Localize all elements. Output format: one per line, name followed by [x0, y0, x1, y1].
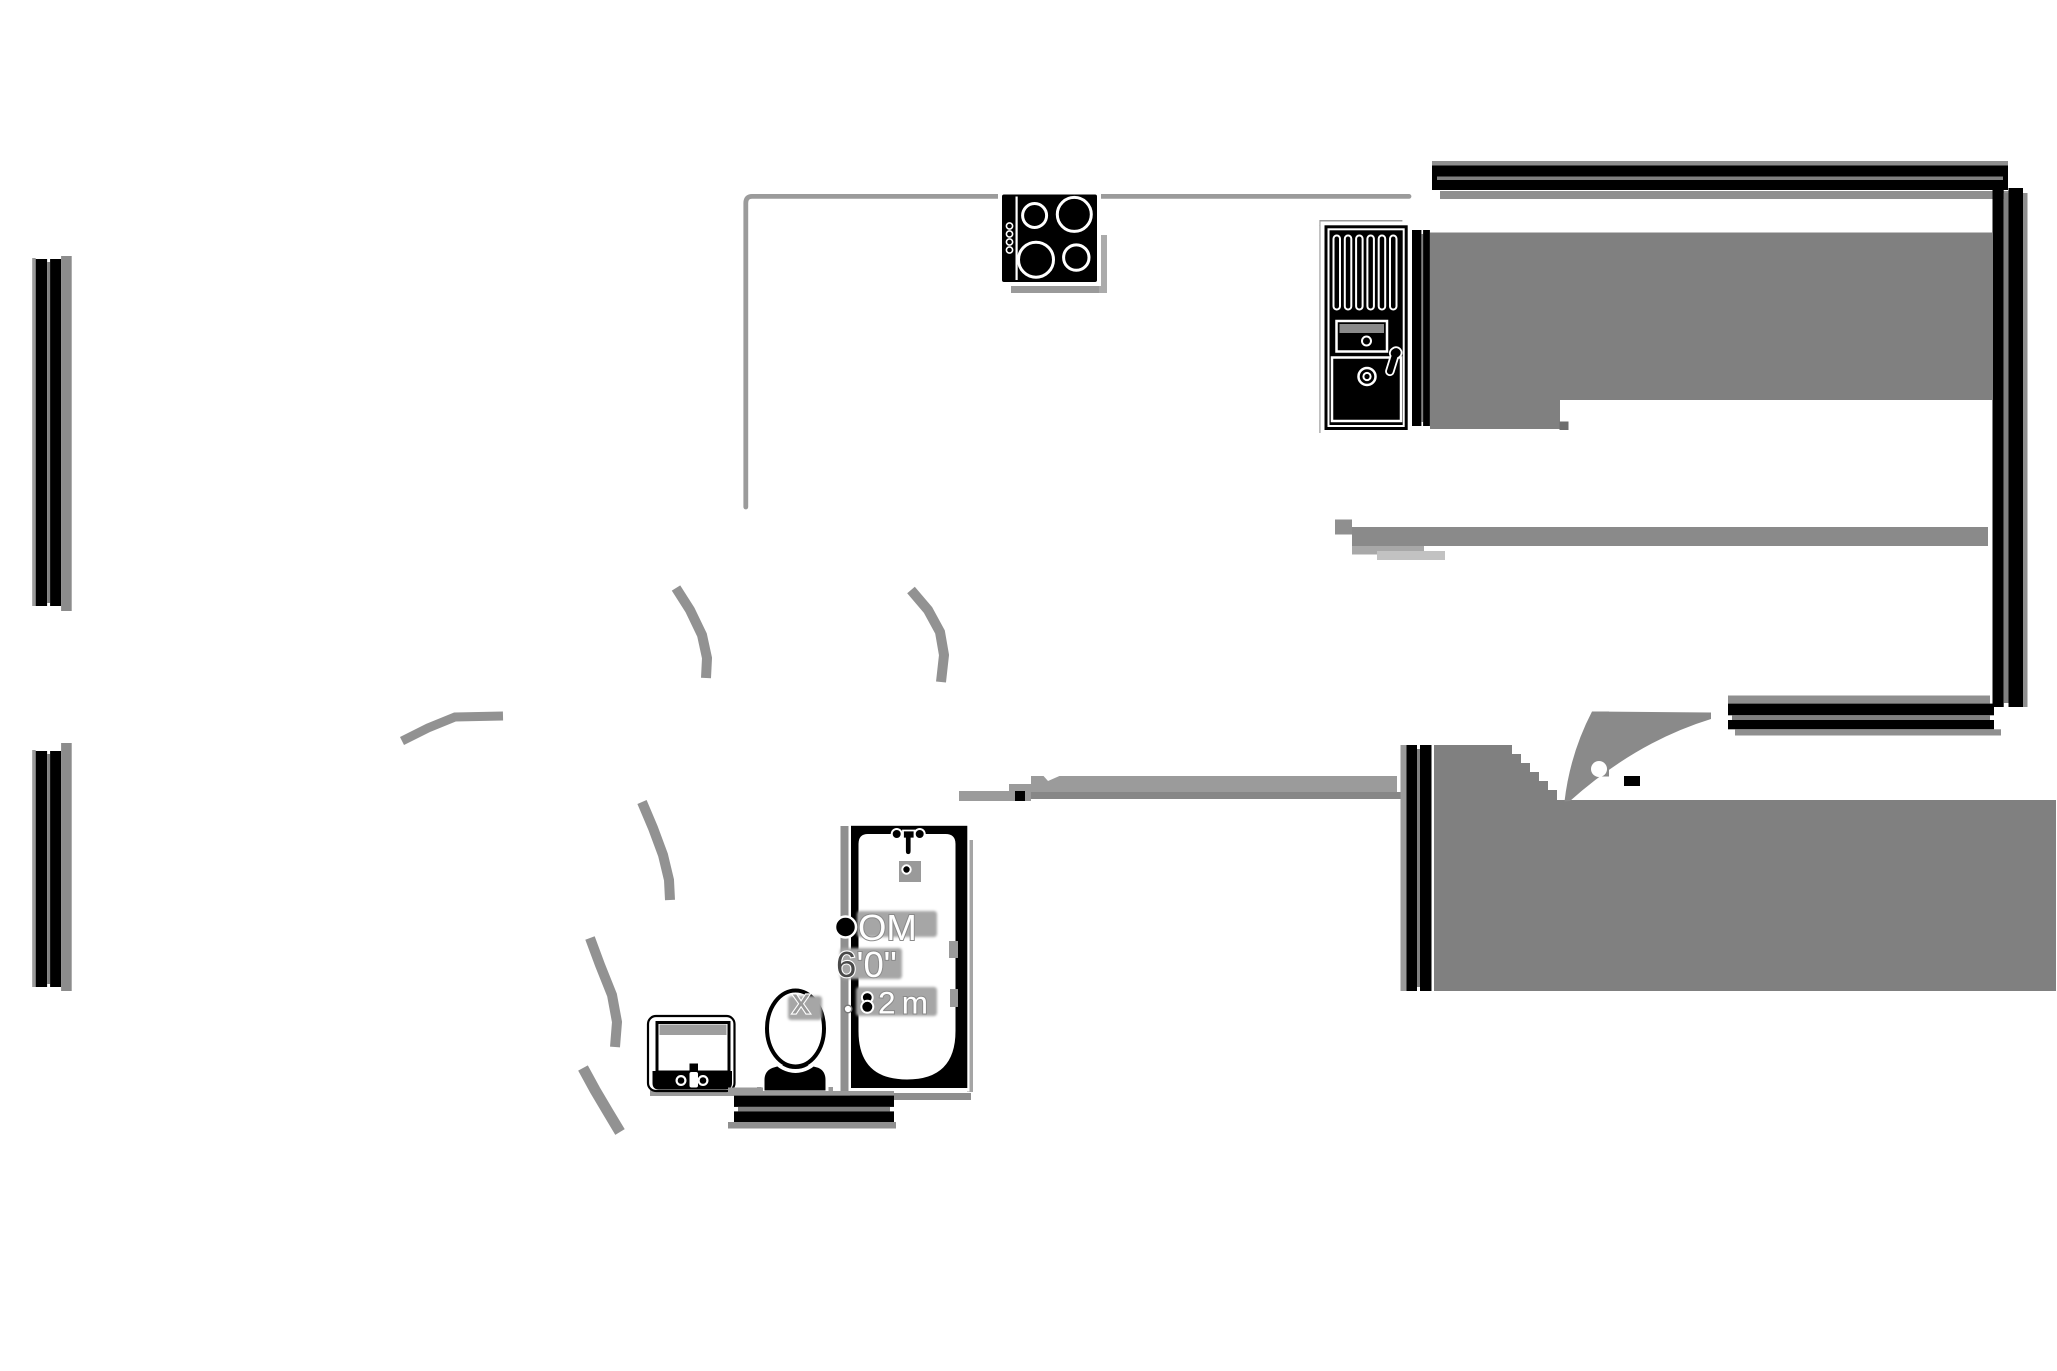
svg-text:2m: 2m	[878, 985, 928, 1021]
svg-text:x: x	[792, 981, 810, 1022]
svg-text:OM: OM	[858, 907, 917, 948]
svg-text:'0": '0"	[857, 944, 897, 985]
svg-text:6: 6	[836, 944, 856, 985]
